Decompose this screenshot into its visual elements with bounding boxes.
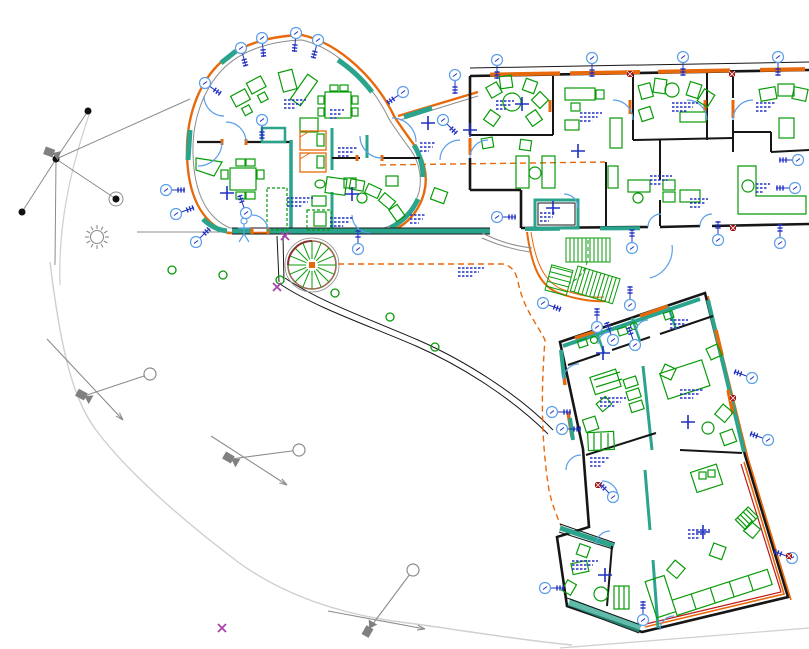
window-tag-balloon	[779, 155, 804, 166]
southeast-wing	[557, 293, 791, 633]
window-tag-balloon	[750, 431, 773, 445]
window-tag-balloon	[592, 308, 603, 333]
camera-marker	[328, 564, 425, 638]
window-tag-balloon	[200, 78, 222, 96]
dashed-line-horizontal	[338, 264, 561, 526]
red-control-marker	[730, 225, 736, 231]
site-path-short	[60, 112, 90, 285]
main-staircase	[545, 238, 620, 304]
survey-network	[19, 99, 191, 265]
ne-wing-furniture	[481, 75, 808, 214]
window-tag-balloon	[191, 227, 211, 247]
window-tag-balloon	[438, 115, 458, 135]
red-control-marker	[786, 553, 792, 559]
survey-cross	[571, 144, 585, 158]
walkway-edge-2	[280, 284, 548, 434]
northeast-wing	[470, 62, 809, 229]
camera-target	[293, 444, 305, 456]
red-control-marker	[730, 395, 736, 401]
window-tag-balloon	[257, 33, 268, 57]
annotation-text-block	[690, 199, 708, 207]
annotation-text-block	[330, 110, 344, 118]
annotation-text-block	[756, 184, 770, 192]
site-path-long	[50, 262, 572, 645]
camera-body-icon	[361, 620, 378, 639]
red-control-marker	[627, 71, 633, 77]
connector-link	[392, 92, 478, 160]
window-tag-balloon	[625, 286, 636, 311]
shrub-circle	[219, 271, 227, 279]
se-wing-door-swings	[563, 320, 674, 630]
camera-target	[407, 564, 419, 576]
survey-edge	[22, 159, 56, 212]
sun-icon	[85, 225, 109, 249]
sofa-arc	[349, 179, 405, 222]
spiral-stair	[285, 238, 339, 292]
window-tag-balloon	[161, 185, 186, 196]
window-tag-balloon	[492, 212, 517, 223]
shrub-circle	[168, 266, 176, 274]
annotation-text-block	[756, 103, 776, 111]
window-tag-balloon	[450, 70, 461, 95]
window-tag-balloon	[311, 35, 324, 59]
survey-cross	[421, 116, 435, 130]
entrance-vestibule	[535, 200, 578, 228]
window-tag-balloon	[171, 205, 194, 219]
camera-target	[144, 368, 156, 380]
window-tag-balloon	[627, 229, 638, 254]
survey-node	[113, 196, 120, 203]
window-tag-balloon	[538, 298, 561, 312]
camera-marker	[47, 339, 156, 420]
annotation-text-block	[458, 268, 484, 276]
sun-symbol	[85, 225, 109, 249]
window-tag-balloon	[638, 601, 649, 626]
window-tag-balloon	[773, 52, 784, 77]
curved-west-building	[187, 35, 490, 242]
connector-wall	[398, 92, 478, 116]
survey-cross	[696, 525, 710, 539]
camera-marker	[43, 146, 61, 161]
annotation-text-block	[330, 218, 354, 226]
survey-cross	[681, 415, 695, 429]
annotation-text-block	[420, 143, 436, 151]
floor-plan-drawing	[0, 0, 809, 649]
camera-body-icon	[75, 388, 94, 404]
beds	[300, 131, 326, 172]
window-tag-balloon	[734, 369, 757, 383]
survey-node	[19, 209, 26, 216]
window-tag-balloon	[775, 224, 786, 249]
window-tag-balloon	[540, 583, 565, 594]
annotation-text-block	[600, 398, 626, 406]
walkway-edge-1	[285, 278, 553, 430]
x-marker	[273, 283, 281, 291]
survey-node	[85, 108, 92, 115]
spiral-stair-center	[309, 262, 315, 268]
camera-body-icon	[43, 146, 61, 161]
shrub-circle	[331, 289, 339, 297]
window-tag-balloon	[387, 87, 409, 105]
walkway-stub	[277, 236, 284, 282]
window-tag-balloon	[776, 183, 801, 194]
survey-cross	[596, 346, 610, 360]
window-tag-balloon	[598, 482, 618, 502]
annotation-text-block	[672, 103, 698, 111]
floor-plan-canvas	[0, 0, 809, 649]
stair-hall-door-swing	[650, 245, 672, 278]
x-marker	[218, 624, 226, 632]
camera-markers	[43, 146, 425, 639]
survey-cross	[220, 186, 234, 200]
site-boundary-bottom	[560, 628, 809, 648]
red-control-marker	[729, 71, 735, 77]
survey-edge	[55, 159, 56, 265]
shrub-circle	[386, 313, 394, 321]
annotation-text-block	[590, 458, 610, 466]
annotation-text-block	[580, 113, 602, 121]
red-control-marker	[595, 482, 601, 488]
camera-marker	[211, 436, 305, 485]
annotation-text-block	[338, 148, 358, 156]
survey-edge	[56, 159, 116, 199]
dashed-line-corridor	[380, 162, 605, 165]
annotation-text-block	[284, 100, 306, 108]
misc-markers	[168, 71, 792, 632]
